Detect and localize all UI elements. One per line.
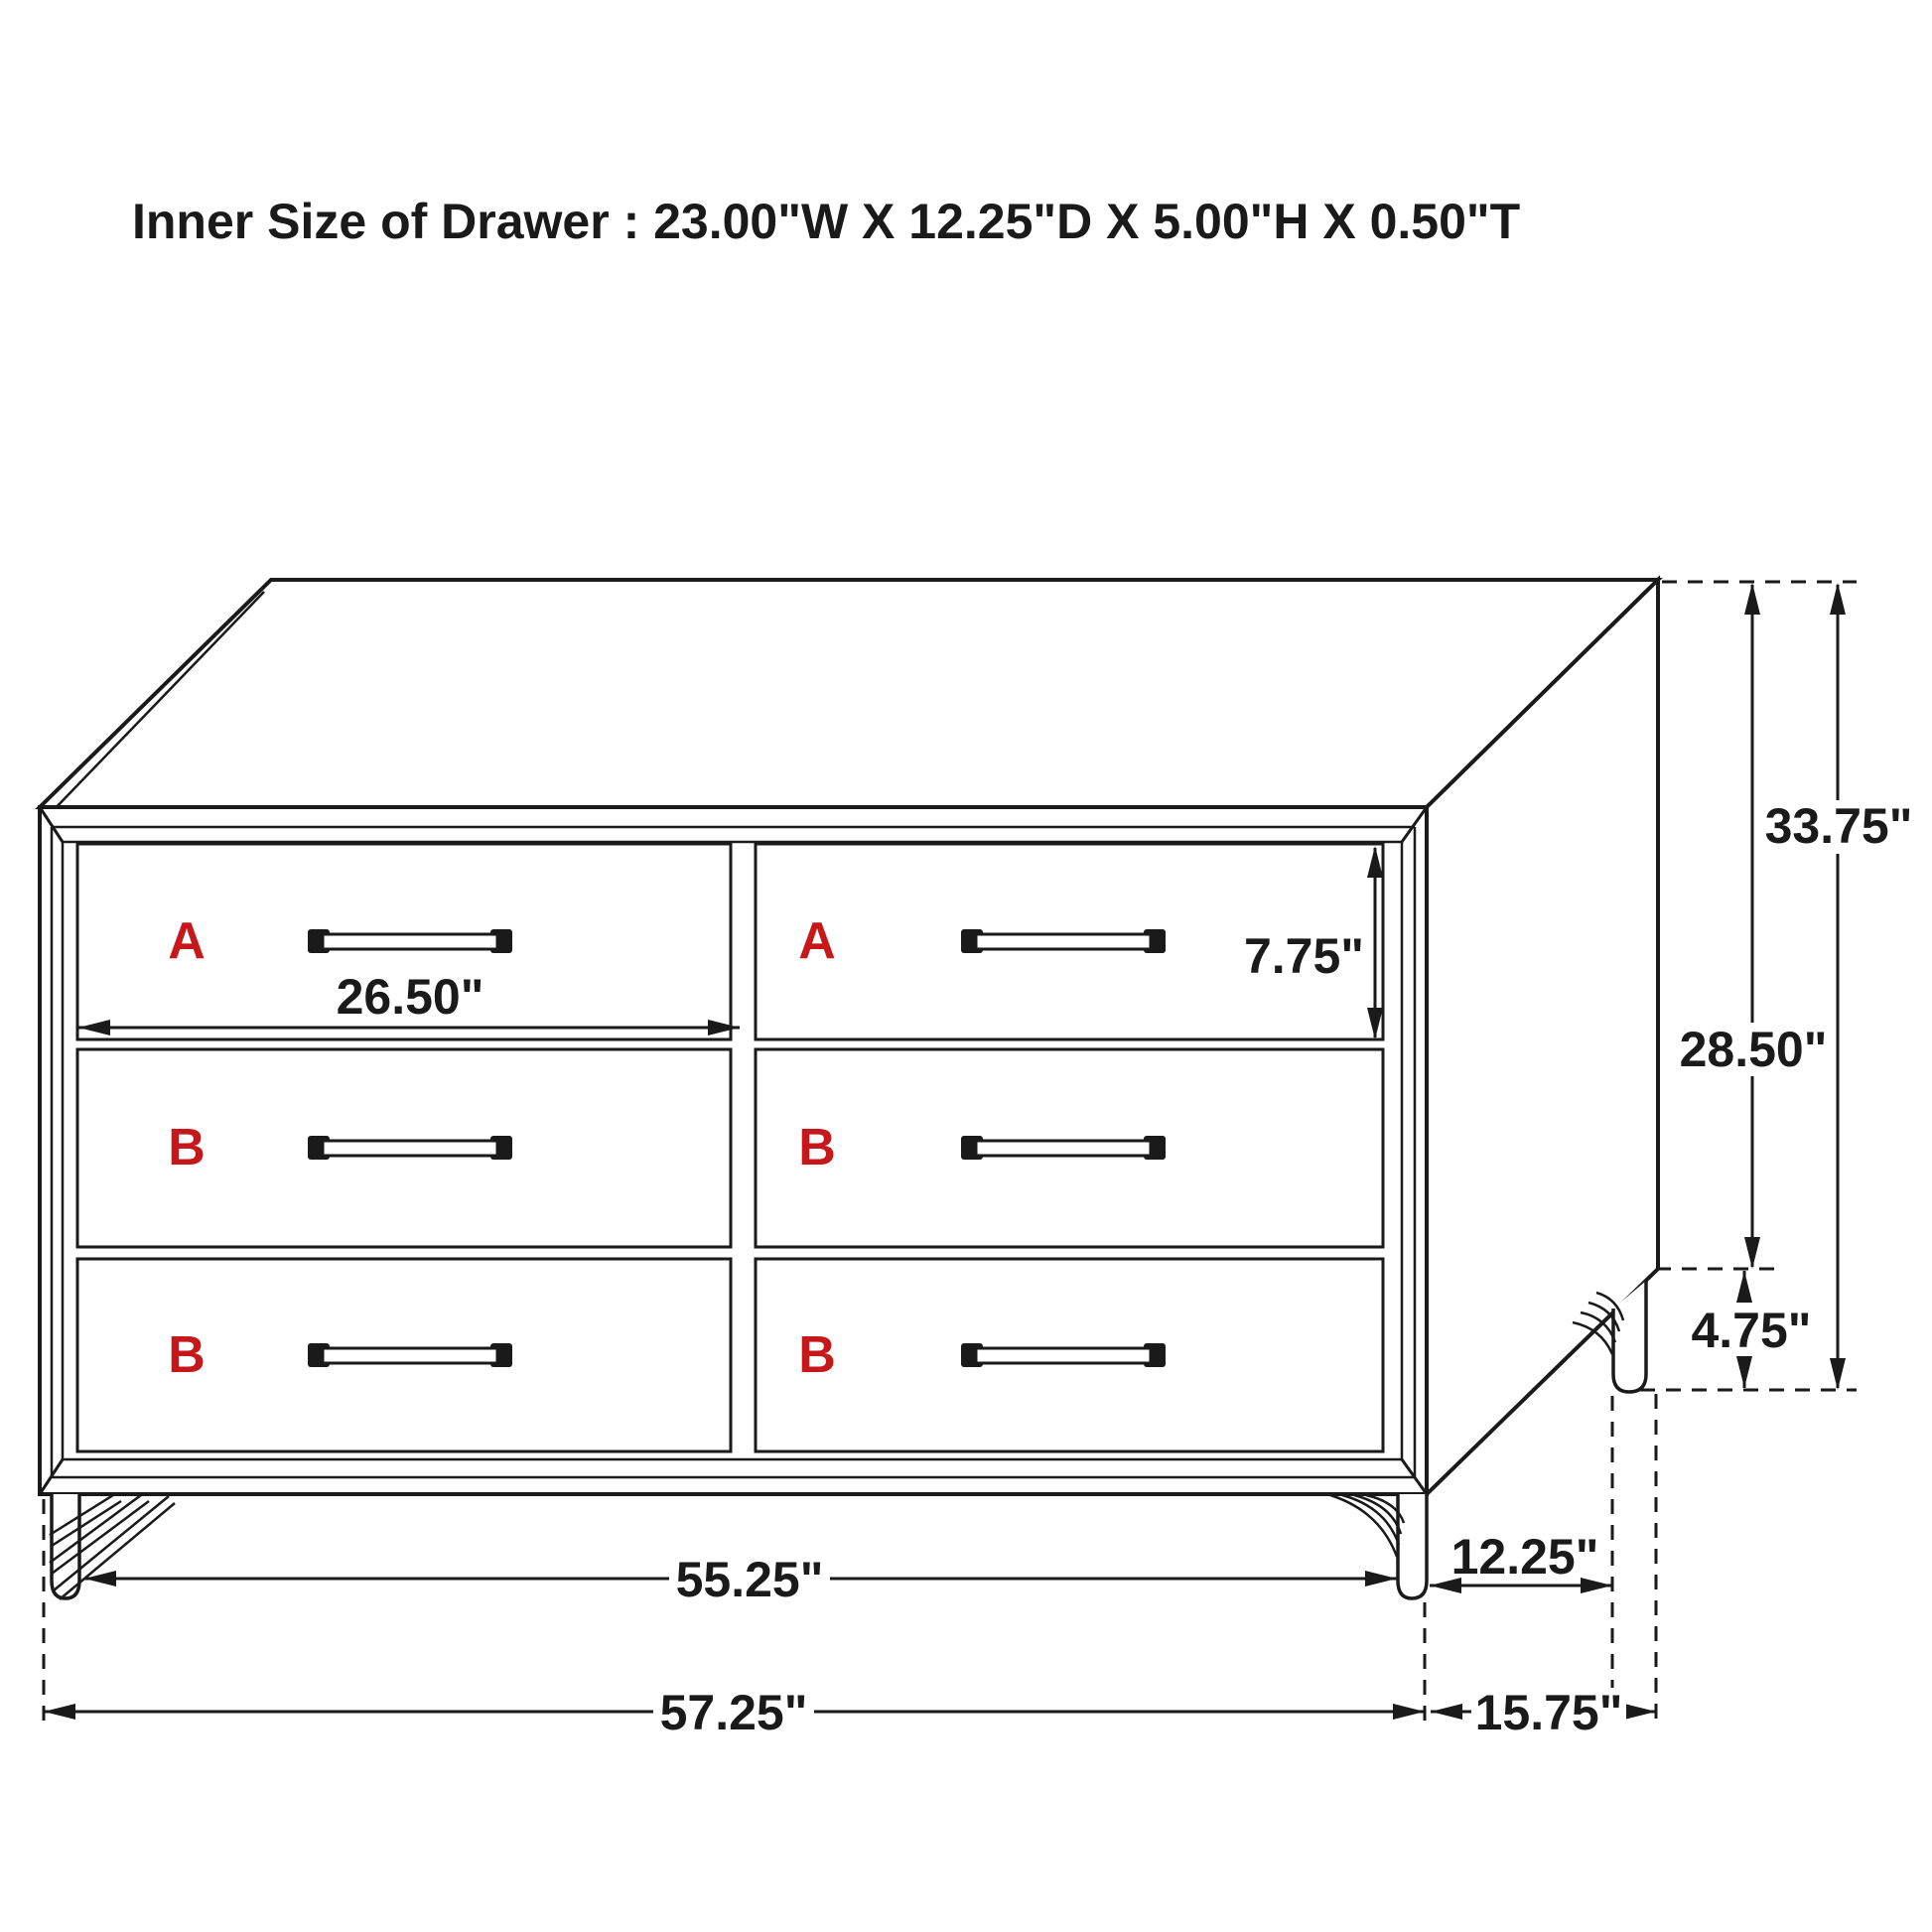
drawer-handle-icon	[961, 1343, 1166, 1367]
dim-overall-depth-label: 15.75"	[1475, 1685, 1623, 1740]
dim-leg-height-label: 4.75"	[1691, 1303, 1811, 1358]
top-face	[40, 580, 1658, 807]
dim-cabinet-height-label: 28.50"	[1680, 1022, 1828, 1077]
drawer-handle-icon	[961, 929, 1166, 953]
drawer-label-bot-left: B	[168, 1326, 206, 1384]
dim-overall-depth: 15.75"	[1431, 1685, 1656, 1740]
drawer-handle-icon	[308, 1136, 512, 1160]
front-right-leg	[1398, 1494, 1427, 1598]
front-face	[40, 807, 1427, 1494]
dim-side-leg-span: 12.25"	[1430, 1529, 1612, 1593]
drawer-label-top-right: A	[798, 912, 836, 970]
drawer-handle-icon	[308, 929, 512, 953]
drawer-label-top-left: A	[168, 912, 206, 970]
dresser-dimension-diagram: Inner Size of Drawer : 23.00"W X 12.25"D…	[0, 0, 1932, 1932]
drawer-label-mid-right: B	[798, 1119, 836, 1176]
diagram-title: Inner Size of Drawer : 23.00"W X 12.25"D…	[132, 194, 1520, 249]
drawer-handle-icon	[308, 1343, 512, 1367]
dim-leg-height: 4.75"	[1691, 1271, 1811, 1388]
dim-drawer-width-label: 26.50"	[337, 969, 484, 1025]
dim-drawer-height-label: 7.75"	[1244, 928, 1364, 984]
dim-overall-height-label: 33.75"	[1765, 798, 1913, 854]
front-left-leg	[52, 1494, 79, 1598]
dim-front-leg-span-label: 55.25"	[676, 1552, 824, 1607]
dim-overall-height: 33.75"	[1758, 583, 1919, 1390]
drawer-label-mid-left: B	[168, 1119, 206, 1176]
dim-side-leg-span-label: 12.25"	[1451, 1529, 1599, 1585]
drawer-label-bot-right: B	[798, 1326, 836, 1384]
diagram-canvas: Inner Size of Drawer : 23.00"W X 12.25"D…	[0, 0, 1932, 1932]
dim-overall-width-label: 57.25"	[660, 1685, 808, 1740]
cabinet-body: A A B B B B	[40, 580, 1658, 1599]
dim-cabinet-height: 28.50"	[1674, 583, 1833, 1269]
dim-overall-width: 57.25"	[44, 1685, 1425, 1740]
drawer-handle-icon	[961, 1136, 1166, 1160]
front-right-leg-struts	[1330, 1495, 1404, 1557]
dim-front-leg-span: 55.25"	[84, 1552, 1397, 1607]
